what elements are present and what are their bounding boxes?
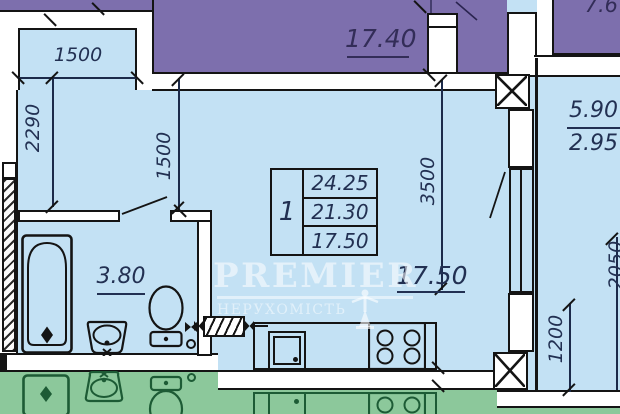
- area-right-room-fraction-line: [567, 127, 620, 129]
- dim-line-balcony: [18, 77, 137, 79]
- bathroom-wall-top-left: [18, 210, 120, 222]
- vent-duct: [203, 316, 245, 337]
- neighbor-kitchen-appliance: [268, 392, 306, 414]
- watermark-underline: [217, 296, 413, 299]
- unit-total-area: 24.25: [304, 170, 376, 199]
- neighbor-unit-bottom-right: [497, 408, 620, 414]
- wall-left-cap: [2, 162, 17, 179]
- column-marker: [493, 352, 528, 390]
- wall-left-end-dark: [0, 353, 7, 372]
- area-right-room-half: 2.95: [566, 131, 618, 156]
- neighbor-strip-top-left: [0, 0, 152, 12]
- dim-left-wall: 2290: [23, 98, 43, 158]
- column-x-icon: [497, 76, 527, 106]
- neighbor-floor-drain: [187, 373, 196, 382]
- dim-line-left-wall: [52, 78, 54, 207]
- unit-living-area: 21.30: [304, 199, 376, 228]
- dim-right-room-segment: 1200: [546, 309, 566, 369]
- neighbor-bathtub: [22, 374, 70, 414]
- neighbor-stove-burners: [368, 392, 426, 414]
- area-bathroom-underline: [97, 293, 145, 295]
- dim-line-hall: [178, 78, 180, 209]
- area-right-room-total: 5.90: [566, 98, 618, 123]
- statue-icon: [349, 288, 381, 330]
- dim-room-width: 3500: [418, 151, 438, 211]
- duct-valve-left-icon: [193, 321, 204, 332]
- wash-sink: [86, 320, 128, 356]
- toilet: [146, 285, 188, 349]
- neighbor-window: [427, 13, 458, 74]
- dim-balcony-width: 1500: [42, 44, 114, 66]
- area-neighbor-top-underline: [347, 56, 409, 58]
- bathtub: [21, 234, 73, 354]
- wall-face-right-room: [535, 58, 538, 390]
- wall-pillar-right-1: [508, 109, 534, 168]
- area-neighbor-top-right: 7.6: [572, 0, 618, 17]
- area-neighbor-top: 17.40: [345, 24, 415, 53]
- wall-pillar-top-right: [507, 12, 537, 77]
- unit-info-table: 1 24.25 21.30 17.50: [270, 168, 378, 256]
- floor-plan-canvas: 17.40 7.6: [0, 0, 620, 414]
- dim-right-room-height: 2050: [606, 235, 620, 295]
- neighbor-toilet: [146, 375, 186, 414]
- column-marker: [495, 74, 530, 109]
- wall-bottom-right: [497, 390, 620, 408]
- unit-number: 1: [272, 170, 304, 254]
- wall-gap-top-right: [537, 0, 552, 55]
- wall-band-top-right: [534, 55, 620, 77]
- neighbor-sink: [84, 371, 124, 403]
- watermark-subtitle: НЕРУХОМІСТЬ: [217, 302, 357, 318]
- column-x-icon: [495, 354, 525, 387]
- unit-room-area: 17.50: [304, 227, 376, 254]
- kitchen-appliance: [268, 331, 306, 370]
- wall-bottom-mid: [218, 370, 497, 390]
- floor-drain: [186, 339, 196, 349]
- dim-line-room-width: [441, 80, 443, 290]
- wall-pillar-right-2: [508, 293, 534, 352]
- dim-line-right-segment: [569, 303, 571, 392]
- window-right-room-divider: [520, 170, 522, 291]
- wall-left-hatched: [2, 178, 16, 352]
- dim-hall-width: 1500: [154, 126, 174, 186]
- neighbor-window-divider: [429, 26, 456, 28]
- area-bathroom: 3.80: [95, 264, 147, 289]
- watermark-brand: PREMIER: [213, 256, 425, 296]
